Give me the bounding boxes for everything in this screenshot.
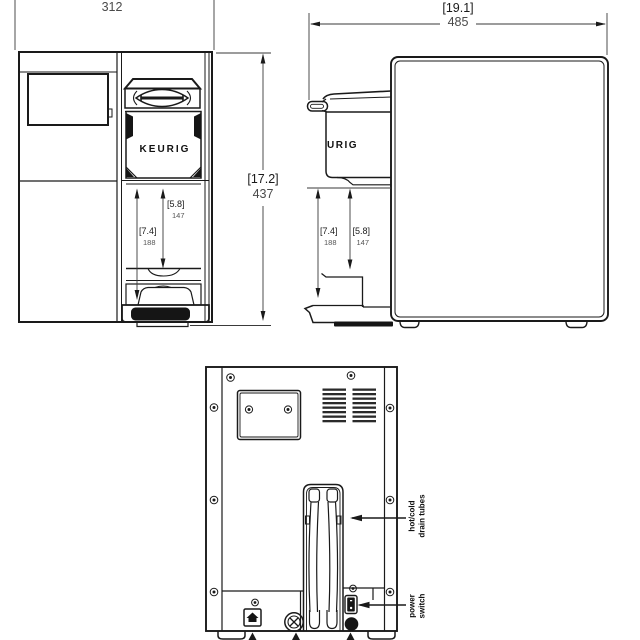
side-depth-inches: [19.1] <box>441 1 474 15</box>
keurig-logo-front: KEURIG <box>140 144 191 155</box>
back-drain-tubes <box>306 502 342 629</box>
front-outer-clearance-mm: 188 <box>143 238 156 247</box>
front-inner-clearance-mm: 147 <box>172 211 185 220</box>
power-switch-label-line2: switch <box>417 594 427 619</box>
drain-tubes-label-line1: hot/cold <box>408 494 418 537</box>
front-brew-head <box>125 79 200 112</box>
side-outer-clearance-inches: [7.4] <box>320 226 338 237</box>
front-view-drawing <box>15 0 271 327</box>
power-switch[interactable] <box>345 596 357 614</box>
front-outer-clearance-inches: [7.4] <box>139 226 157 237</box>
side-inner-clearance-mm: 147 <box>357 238 370 247</box>
power-switch-label: power switch <box>408 594 427 619</box>
power-switch-label-line1: power <box>408 594 418 619</box>
front-dispensing-bay <box>122 181 210 306</box>
power-inlet <box>345 617 359 631</box>
power-switch-arrow <box>358 602 407 609</box>
line-art <box>0 0 640 640</box>
side-inner-clearance-inches: [5.8] <box>353 226 371 237</box>
back-access-panel <box>238 391 301 440</box>
drain-tubes-label: hot/cold drain tubes <box>408 494 427 537</box>
side-outer-clearance-mm: 188 <box>324 238 337 247</box>
front-drip-tray <box>122 305 209 327</box>
side-view-drawing <box>305 13 608 328</box>
front-machine-outline <box>19 52 212 322</box>
front-width-mm: 312 <box>100 0 125 14</box>
back-network-port <box>244 609 261 626</box>
back-feet <box>218 631 395 639</box>
drain-tubes-label-line2: drain tubes <box>417 494 427 537</box>
back-view-drawing <box>206 367 406 640</box>
front-screen <box>28 74 112 125</box>
front-height-mm: 437 <box>251 187 276 201</box>
bottom-callout-arrows <box>249 633 355 640</box>
back-drain-fitting <box>285 613 303 631</box>
dimension-drawing-canvas: 312 [17.2] 437 [5.8] 147 [7.4] 188 KEURI… <box>0 0 640 640</box>
front-height-inches: [17.2] <box>246 172 279 186</box>
side-body <box>391 57 608 321</box>
keurig-logo-side: URIG <box>327 140 358 151</box>
side-depth-mm: 485 <box>446 15 471 29</box>
back-vent-grille <box>323 389 377 423</box>
side-drip-tray <box>305 274 587 328</box>
front-inner-clearance-inches: [5.8] <box>167 199 185 210</box>
